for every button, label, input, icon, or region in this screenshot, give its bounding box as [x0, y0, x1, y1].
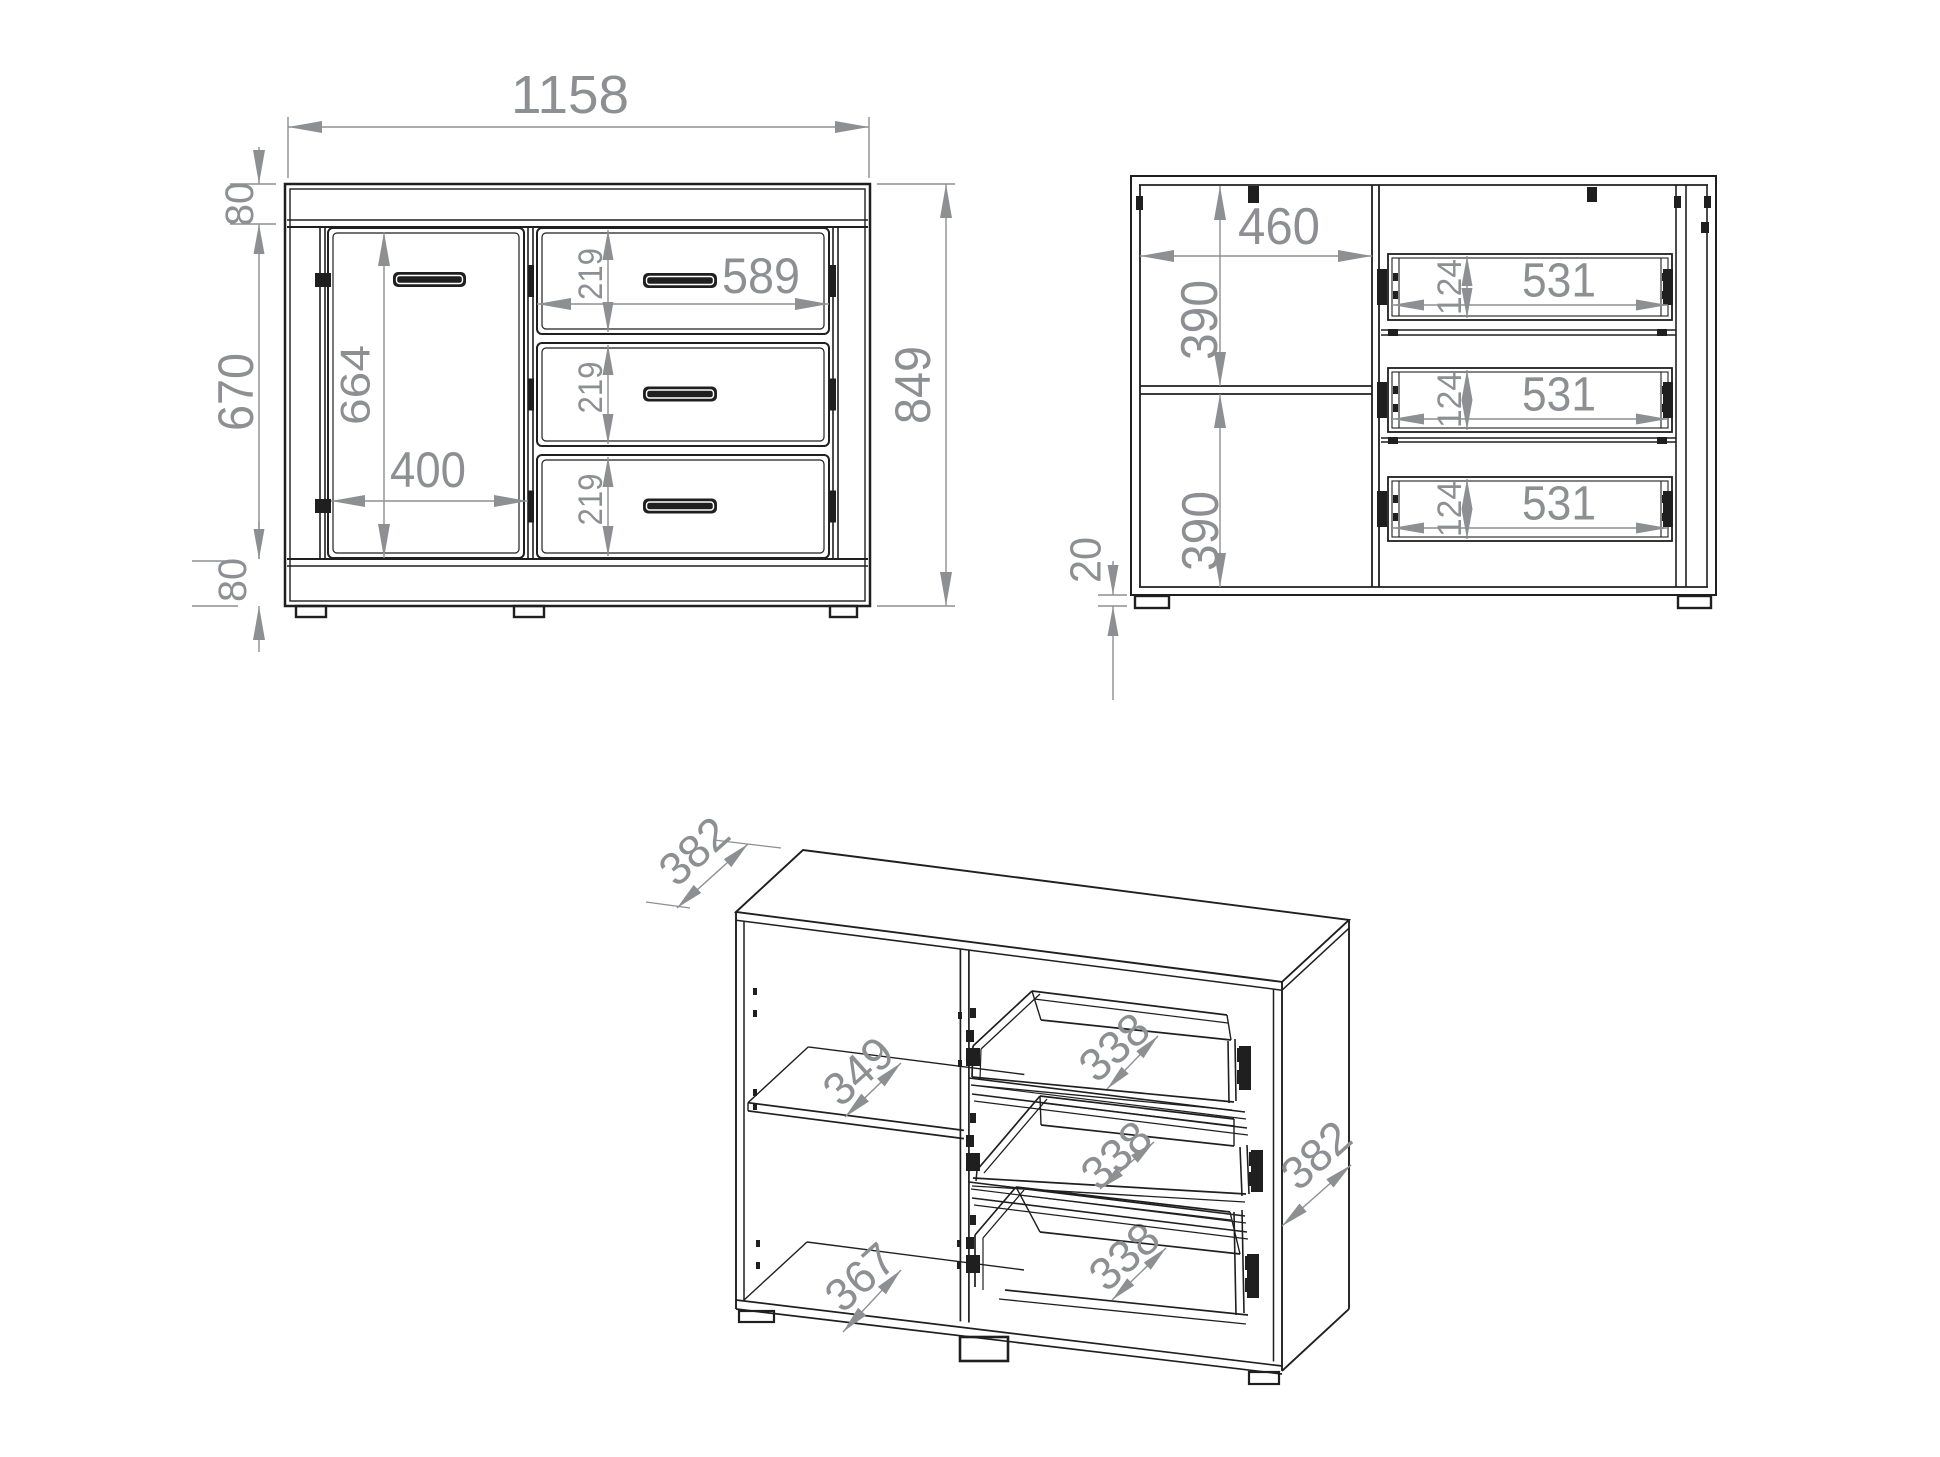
svg-text:589: 589 [722, 248, 800, 304]
svg-text:849: 849 [885, 346, 941, 424]
svg-text:382: 382 [648, 806, 739, 895]
svg-text:531: 531 [1522, 255, 1596, 308]
svg-text:20: 20 [1062, 537, 1111, 583]
svg-text:460: 460 [1238, 198, 1320, 256]
svg-text:400: 400 [390, 442, 466, 498]
svg-text:219: 219 [572, 248, 610, 300]
svg-text:531: 531 [1522, 478, 1596, 531]
svg-text:390: 390 [1172, 491, 1230, 571]
svg-text:382: 382 [1270, 1110, 1361, 1199]
svg-text:670: 670 [208, 353, 264, 431]
svg-text:390: 390 [1171, 280, 1229, 360]
svg-text:664: 664 [332, 345, 379, 425]
svg-text:219: 219 [572, 362, 610, 414]
svg-text:1158: 1158 [511, 65, 629, 125]
svg-text:80: 80 [211, 558, 255, 602]
svg-text:80: 80 [218, 182, 262, 226]
svg-text:338: 338 [1070, 1110, 1161, 1199]
svg-text:531: 531 [1522, 369, 1596, 422]
svg-text:219: 219 [572, 474, 610, 526]
svg-text:124: 124 [1431, 259, 1469, 315]
